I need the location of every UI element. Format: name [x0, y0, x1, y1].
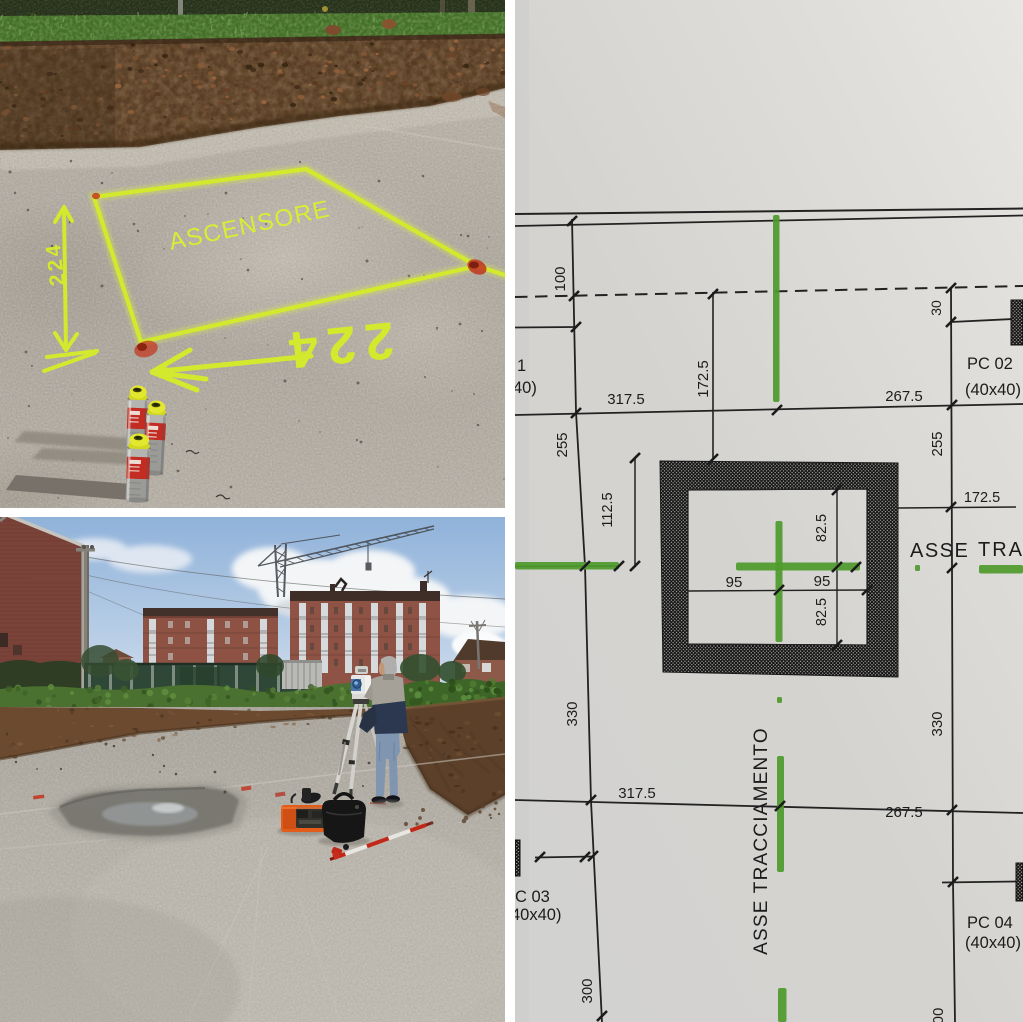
- svg-text:267.5: 267.5: [885, 388, 923, 405]
- svg-text:172.5: 172.5: [964, 490, 1000, 506]
- svg-text:255: 255: [554, 432, 571, 457]
- svg-text:300: 300: [579, 978, 596, 1003]
- svg-text:ASSE: ASSE: [910, 540, 969, 562]
- svg-text:255: 255: [929, 431, 946, 456]
- svg-text:(40x40): (40x40): [965, 934, 1021, 952]
- svg-text:100: 100: [552, 266, 569, 291]
- svg-text:30: 30: [928, 300, 944, 316]
- svg-text:00: 00: [930, 1008, 947, 1022]
- svg-text:(40x40): (40x40): [965, 381, 1021, 399]
- svg-text:ASSE TRACCIAMENTO: ASSE TRACCIAMENTO: [751, 727, 772, 955]
- svg-text:224: 224: [277, 310, 396, 380]
- svg-text:95: 95: [726, 574, 743, 591]
- svg-text:330: 330: [564, 701, 581, 726]
- svg-text:TRAC: TRAC: [978, 539, 1023, 561]
- svg-text:C 03: C 03: [515, 888, 550, 906]
- svg-text:40x40): 40x40): [515, 906, 561, 924]
- svg-text:PC 04: PC 04: [967, 914, 1013, 932]
- svg-text:40): 40): [515, 379, 537, 397]
- svg-text:172.5: 172.5: [695, 360, 712, 398]
- svg-text:82.5: 82.5: [814, 598, 830, 626]
- svg-text:317.5: 317.5: [607, 391, 645, 408]
- svg-text:PC 02: PC 02: [967, 355, 1013, 373]
- svg-text:267.5: 267.5: [885, 804, 923, 821]
- svg-text:330: 330: [929, 711, 946, 736]
- svg-text:95: 95: [814, 573, 831, 590]
- svg-text:82.5: 82.5: [814, 514, 830, 542]
- svg-text:317.5: 317.5: [618, 785, 656, 802]
- svg-text:1: 1: [517, 357, 526, 375]
- svg-text:112.5: 112.5: [600, 492, 616, 527]
